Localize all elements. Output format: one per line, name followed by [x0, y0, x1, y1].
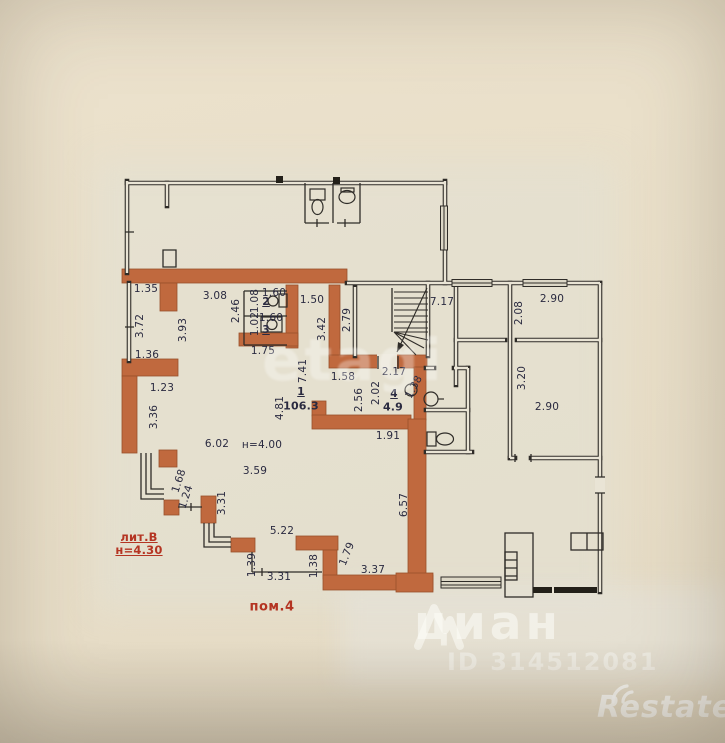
stairs	[394, 288, 428, 355]
dimension-label: 2.90	[535, 401, 559, 413]
dimension-label: 3.37	[361, 564, 385, 576]
dimension-label: 3.93	[177, 318, 189, 342]
dimension-label: 7.41	[297, 359, 309, 383]
dimension-label: 2.79	[341, 308, 353, 332]
toilet-bowl-icon	[312, 200, 323, 215]
dimension-label: 3.72	[134, 314, 146, 338]
dimension-label: 1.91	[376, 430, 400, 442]
dimension-label: 1.60	[259, 312, 283, 324]
dimension-label: 2	[262, 296, 270, 308]
dimension-label: 1.50	[300, 294, 324, 306]
dimension-label: 2.02	[370, 381, 382, 405]
dimension-label: 3.42	[316, 317, 328, 341]
dimension-label: 3.08	[203, 290, 227, 302]
plan-red-label: н=4.30	[115, 543, 162, 557]
dimension-label: 1	[297, 386, 305, 398]
dimension-label: 2.56	[353, 388, 365, 412]
floorplan-photo: 1.353.082.461.081.6021.021.6031.751.503.…	[0, 0, 725, 743]
dimension-label: 1.38	[308, 554, 320, 578]
dimension-label: н=4.00	[242, 439, 282, 451]
dimension-label: 1.23	[150, 382, 174, 394]
dimension-label: 6.57	[398, 493, 410, 517]
dimension-label: 4	[390, 388, 398, 400]
dimension-label: 1.35	[134, 283, 158, 295]
black-walls-inner	[127, 181, 600, 592]
dimension-label: 1.36	[135, 349, 159, 361]
dimension-label: 106.3	[283, 400, 319, 413]
plan-red-label: лит.В	[120, 530, 157, 544]
thin-walls	[125, 183, 605, 597]
solid-marks	[276, 176, 597, 594]
dimension-label: 3.59	[243, 465, 267, 477]
dimension-label: 3.20	[516, 366, 528, 390]
dimension-label: 3.36	[148, 405, 160, 429]
plan-red-label: пом.4	[249, 600, 294, 615]
dimension-label: 2.90	[540, 293, 564, 305]
toilet-tank-icon	[310, 189, 325, 200]
dimension-label: 4.9	[383, 401, 403, 414]
toilet-tank-icon	[427, 432, 436, 446]
dimension-label: 2.17	[382, 366, 406, 378]
dimension-label: 1.58	[331, 371, 355, 383]
dimension-label: 2.46	[230, 299, 242, 323]
dimension-label: 1.39	[246, 553, 258, 577]
dimension-label: 3.31	[267, 571, 291, 583]
dimension-label: 7.17	[430, 296, 454, 308]
dimension-label: 5.22	[270, 525, 294, 537]
dimension-label: 3	[262, 324, 270, 336]
dimension-label: 1.75	[251, 345, 275, 357]
dimension-label: 4.81	[274, 396, 286, 420]
dimension-label: 1.08	[249, 289, 261, 313]
windows	[441, 206, 568, 588]
toilet-bowl-icon	[437, 433, 454, 445]
dimension-label: 3.31	[216, 491, 228, 515]
dimension-label: 6.02	[205, 438, 229, 450]
dimension-label: 2.08	[513, 301, 525, 325]
floorplan-drawing	[0, 0, 725, 743]
black-walls	[127, 181, 600, 592]
